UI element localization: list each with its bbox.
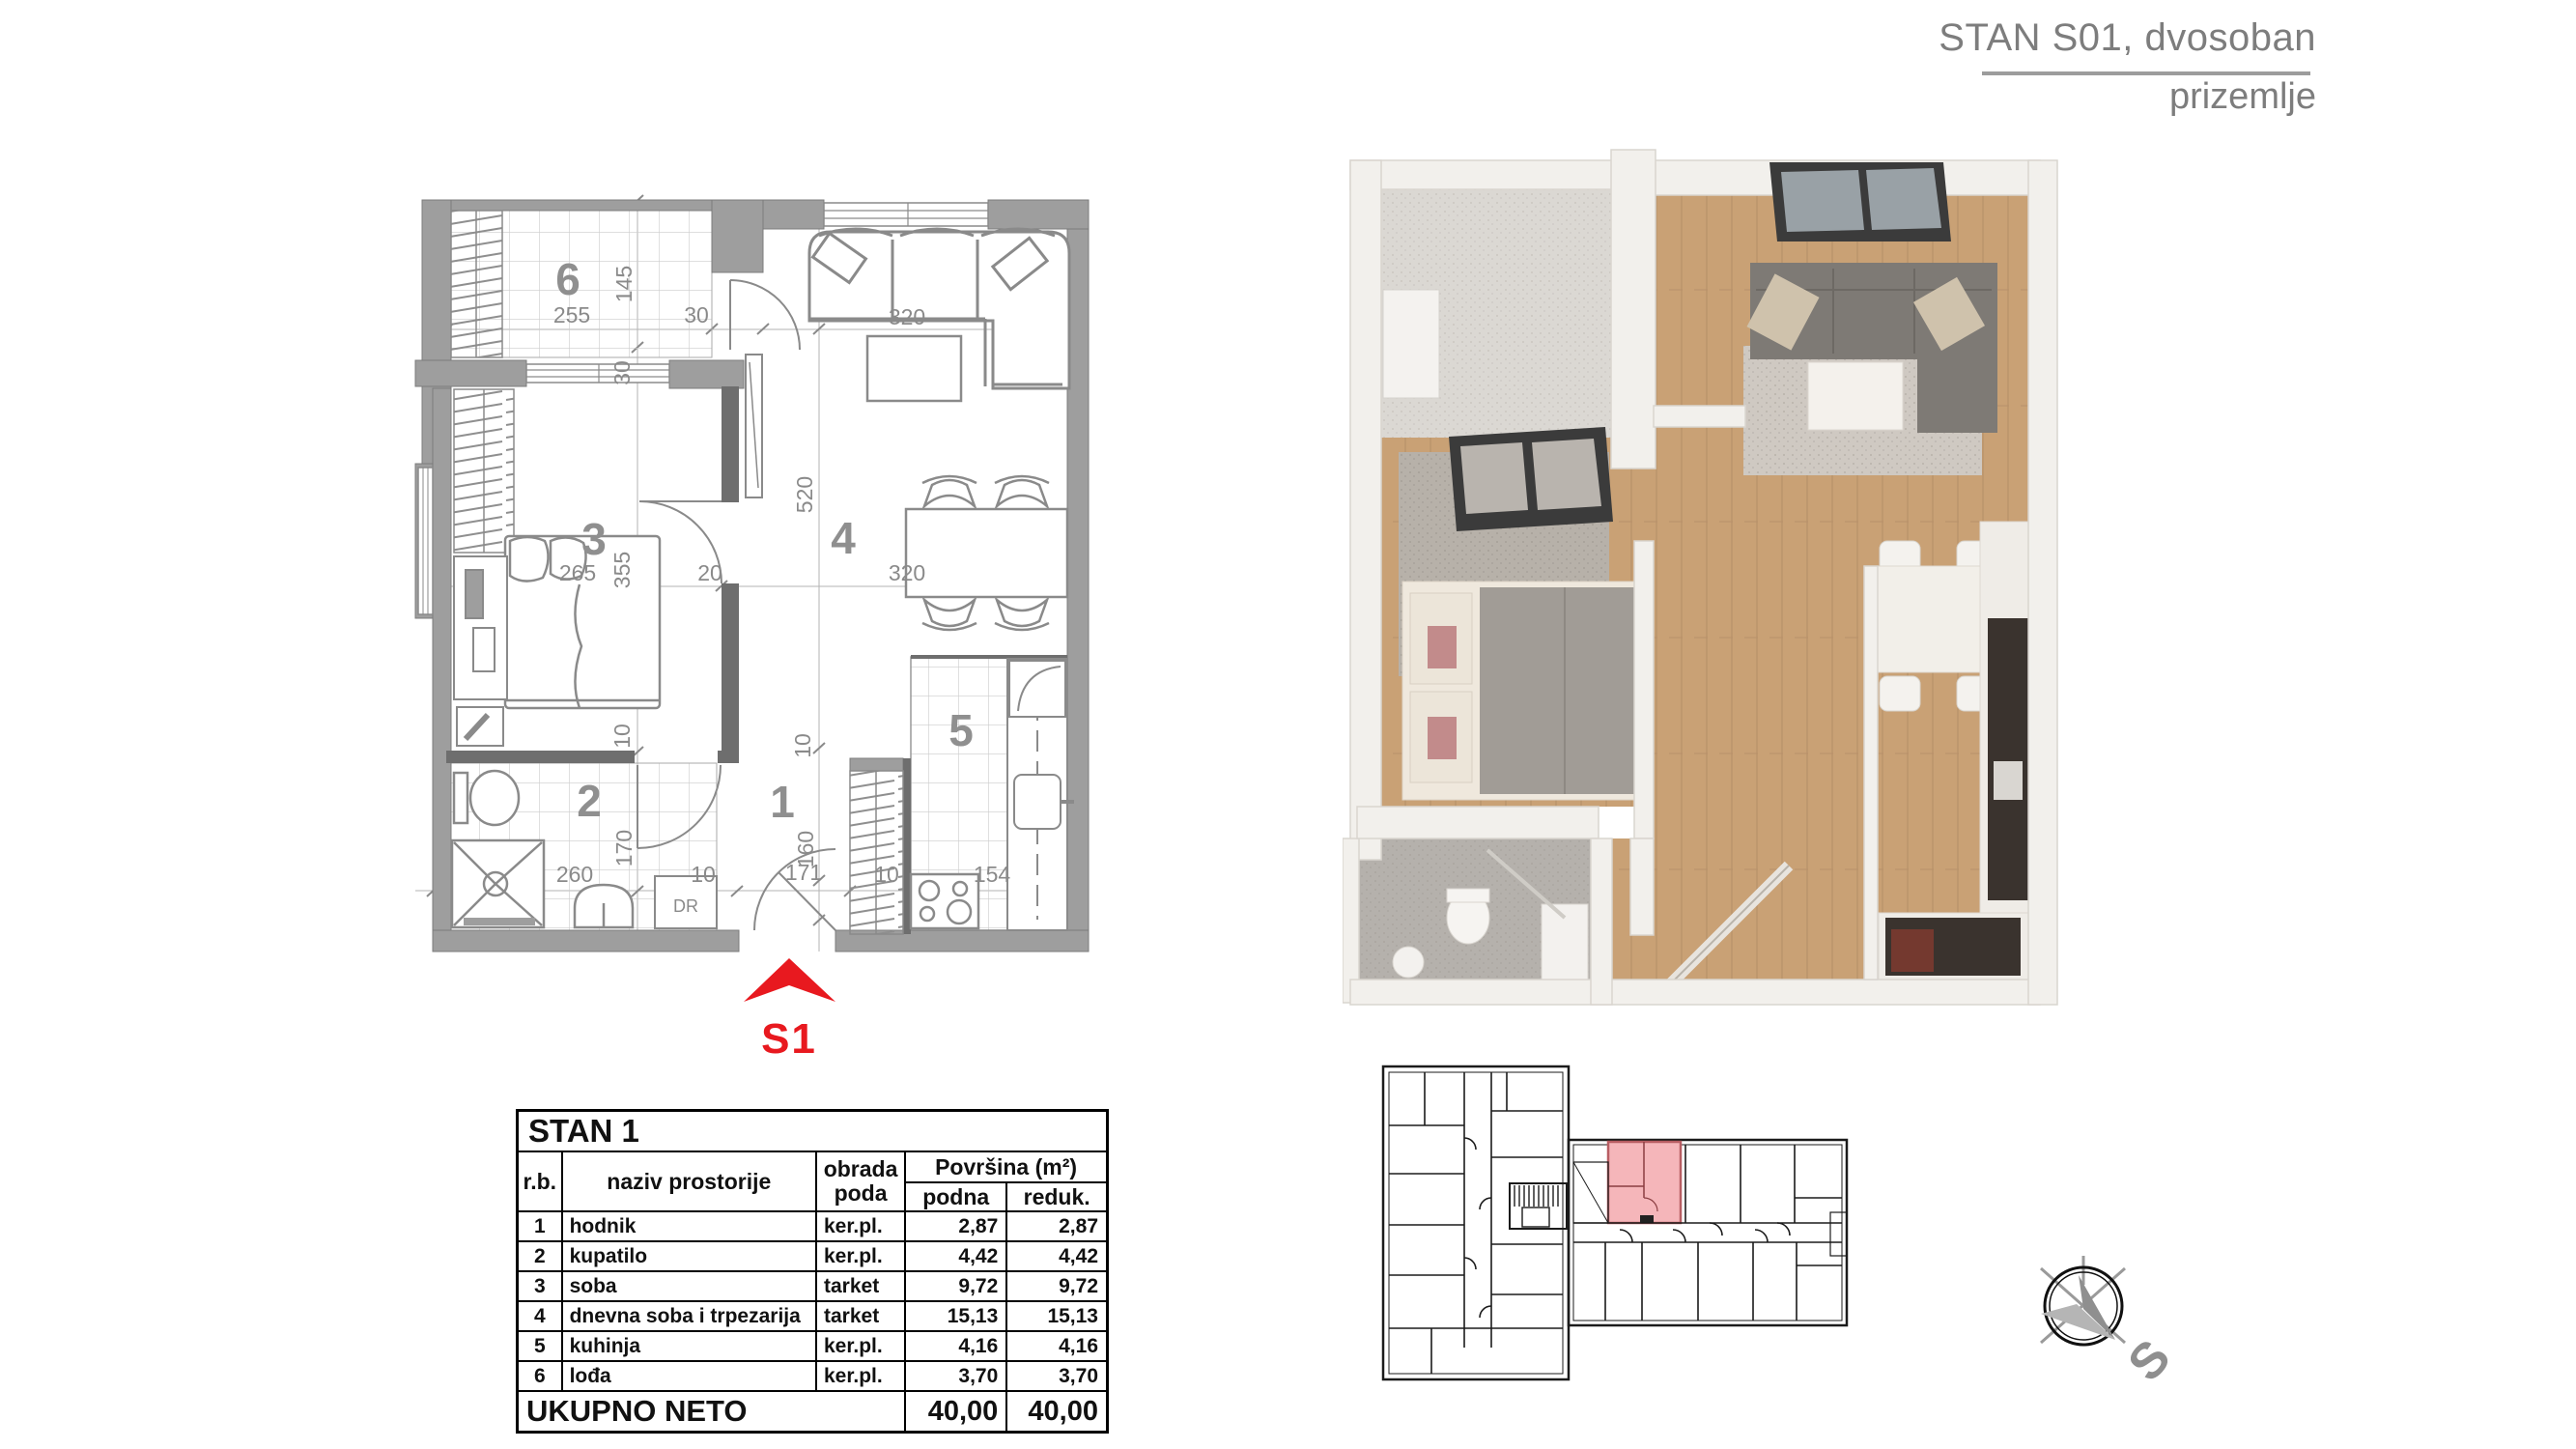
sheet-subtitle: prizemlje bbox=[1939, 75, 2316, 118]
bedroom-dresser bbox=[454, 556, 507, 699]
table-row: 1hodnik ker.pl.2,87 2,87 bbox=[518, 1211, 1108, 1241]
entry-label: S1 bbox=[761, 1015, 817, 1063]
sink bbox=[575, 885, 633, 927]
dim-154: 154 bbox=[974, 862, 1011, 887]
dim-145: 145 bbox=[611, 266, 637, 302]
shower bbox=[452, 840, 544, 927]
dim-10h-b: 10 bbox=[874, 862, 899, 887]
dining-set bbox=[906, 476, 1067, 630]
left-wing-rooms bbox=[1389, 1072, 1563, 1374]
washer-3d bbox=[1383, 290, 1439, 398]
dim-20: 20 bbox=[697, 560, 722, 585]
stairs-icon bbox=[1510, 1183, 1567, 1229]
dim-170: 170 bbox=[611, 830, 637, 867]
bedroom-nightstand bbox=[457, 707, 503, 746]
table-row: 6lođa ker.pl.3,70 3,70 bbox=[518, 1361, 1108, 1391]
floorplan-sheet: { "header": { "title": "STAN S01, dvosob… bbox=[0, 0, 2576, 1449]
room-number-6: 6 bbox=[555, 254, 580, 304]
table-row: 3soba tarket9,72 9,72 bbox=[518, 1271, 1108, 1301]
room-number-3: 3 bbox=[581, 514, 607, 564]
room-number-2: 2 bbox=[577, 776, 602, 826]
building-overview bbox=[1376, 1061, 1859, 1394]
dim-30h: 30 bbox=[684, 302, 709, 327]
dining-table bbox=[906, 509, 1067, 597]
total-reduk: 40,00 bbox=[1006, 1391, 1107, 1433]
area-table: STAN 1 r.b. naziv prostorije obrada poda… bbox=[516, 1109, 1109, 1434]
highlighted-unit bbox=[1608, 1142, 1681, 1223]
bath-stool-3d bbox=[1393, 947, 1424, 978]
stove bbox=[911, 874, 978, 928]
col-header-rb: r.b. bbox=[518, 1151, 562, 1211]
dim-10v-b: 10 bbox=[790, 733, 815, 758]
kitchen-counter bbox=[1007, 659, 1074, 930]
dim-355: 355 bbox=[609, 552, 635, 588]
dim-265: 265 bbox=[559, 560, 596, 585]
compass-south-label: S bbox=[2117, 1329, 2181, 1392]
entry-arrow-icon bbox=[744, 958, 835, 1002]
dim-255: 255 bbox=[553, 302, 590, 327]
dim-171: 171 bbox=[785, 860, 822, 885]
room-number-5: 5 bbox=[948, 705, 974, 755]
compass-icon: S bbox=[2009, 1227, 2250, 1449]
col-header-povrsina: Površina (m²) bbox=[905, 1151, 1107, 1182]
dim-260: 260 bbox=[556, 862, 593, 887]
room-number-1: 1 bbox=[770, 777, 795, 827]
dim-10h-a: 10 bbox=[691, 862, 716, 887]
total-podna: 40,00 bbox=[905, 1391, 1006, 1433]
table-total-row: UKUPNO NETO 40,00 40,00 bbox=[518, 1391, 1108, 1433]
room-number-4: 4 bbox=[831, 513, 856, 563]
dim-320-table: 320 bbox=[889, 560, 925, 585]
entry-marker: S1 bbox=[744, 958, 835, 1063]
table-row: 2kupatilo ker.pl.4,42 4,42 bbox=[518, 1241, 1108, 1271]
kitchen-sink bbox=[1014, 775, 1061, 829]
dim-320-sofa: 320 bbox=[889, 304, 925, 329]
dim-10v-a: 10 bbox=[609, 724, 635, 749]
closet-dr-label: DR bbox=[673, 896, 698, 916]
coffee-table bbox=[867, 336, 961, 401]
col-header-reduk: reduk. bbox=[1006, 1182, 1107, 1211]
floorplan-2d: DR bbox=[410, 188, 1101, 1063]
col-header-naziv: naziv prostorije bbox=[562, 1151, 816, 1211]
col-header-podna: podna bbox=[905, 1182, 1006, 1211]
sheet-title: STAN S01, dvosoban bbox=[1939, 15, 2316, 60]
table-row: 4dnevna soba i trpezarija tarket15,13 15… bbox=[518, 1301, 1108, 1331]
title-underline bbox=[1982, 71, 2310, 75]
area-table-wrap: STAN 1 r.b. naziv prostorije obrada poda… bbox=[516, 1109, 1109, 1434]
col-header-obrada: obrada poda bbox=[816, 1151, 905, 1211]
dim-520: 520 bbox=[792, 476, 817, 513]
sheet-header: STAN S01, dvosoban prizemlje bbox=[1939, 15, 2316, 118]
total-label: UKUPNO NETO bbox=[518, 1391, 906, 1433]
floorplan-3d bbox=[1343, 140, 2067, 1014]
tv-cabinet bbox=[746, 355, 762, 497]
dim-30v: 30 bbox=[609, 360, 635, 385]
table-title: STAN 1 bbox=[518, 1111, 1108, 1152]
toilet bbox=[454, 771, 519, 825]
table-row: 5kuhinja ker.pl.4,16 4,16 bbox=[518, 1331, 1108, 1361]
coffee-table-3d bbox=[1808, 362, 1903, 430]
